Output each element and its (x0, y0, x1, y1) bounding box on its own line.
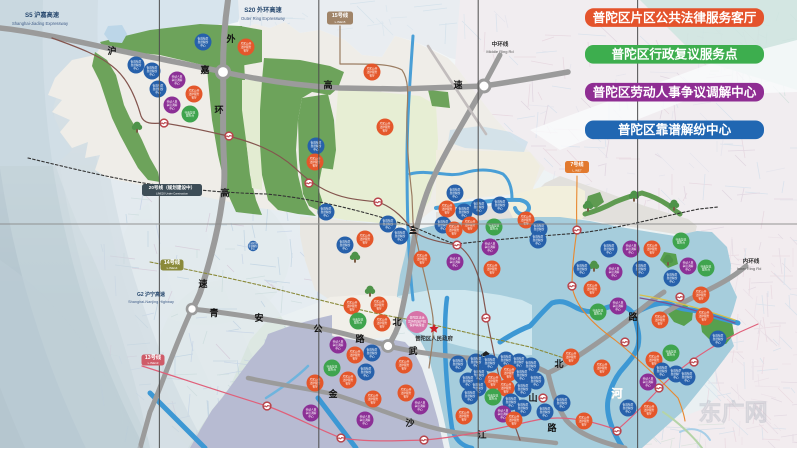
svg-text:S20 外环高速: S20 外环高速 (244, 6, 282, 14)
svg-text:法律服务: 法律服务 (649, 358, 660, 362)
svg-text:法律服务: 法律服务 (350, 353, 361, 357)
svg-text:中心: 中心 (625, 409, 631, 413)
svg-text:中心: 中心 (467, 397, 473, 401)
svg-text:中心: 中心 (308, 414, 314, 418)
svg-text:法律服务: 法律服务 (459, 414, 470, 418)
svg-text:客厅: 客厅 (467, 226, 473, 230)
svg-text:客厅: 客厅 (568, 358, 574, 362)
svg-text:法律服务: 法律服务 (399, 363, 410, 367)
svg-text:靠谱解纷: 靠谱解纷 (459, 210, 470, 214)
svg-text:中心: 中心 (397, 237, 403, 241)
svg-text:靠谱解纷: 靠谱解纷 (604, 247, 615, 251)
svg-text:靠谱解纷: 靠谱解纷 (533, 238, 544, 242)
svg-text:法律服务: 法律服务 (367, 70, 378, 74)
svg-text:靠谱解纷: 靠谱解纷 (340, 243, 351, 247)
svg-text:争议调解: 争议调解 (450, 260, 461, 264)
svg-text:中心: 中心 (535, 241, 541, 245)
svg-text:法律服务: 法律服务 (442, 207, 453, 211)
svg-text:中心: 中心 (363, 373, 369, 377)
svg-text:法律服务: 法律服务 (417, 257, 428, 261)
svg-text:靠谱解纷: 靠谱解纷 (147, 69, 158, 73)
svg-text:靠谱解纷: 靠谱解纷 (518, 406, 529, 410)
svg-text:Outer Ring Expressway: Outer Ring Expressway (241, 16, 286, 21)
svg-text:客厅: 客厅 (444, 210, 450, 214)
svg-text:普陀区靠谱解纷中心: 普陀区靠谱解纷中心 (618, 122, 732, 137)
svg-text:靠谱解纷: 靠谱解纷 (321, 210, 332, 214)
svg-text:中心: 中心 (715, 340, 721, 344)
svg-text:客厅: 客厅 (646, 411, 652, 415)
svg-text:中心: 中心 (497, 206, 503, 210)
svg-text:法律服务: 法律服务 (521, 218, 532, 222)
svg-text:法律服务: 法律服务 (449, 228, 460, 232)
svg-text:中心: 中心 (520, 390, 526, 394)
svg-text:中心: 中心 (508, 403, 514, 407)
svg-text:服务点: 服务点 (667, 353, 675, 357)
svg-text:靠谱解纷: 靠谱解纷 (367, 351, 378, 355)
svg-text:中心: 中心 (149, 72, 155, 76)
svg-text:客厅: 客厅 (379, 324, 385, 328)
svg-text:中心: 中心 (342, 246, 348, 250)
svg-text:中心: 中心 (487, 248, 493, 252)
svg-text:中心: 中心 (335, 346, 341, 350)
svg-text:靠谱解纷: 靠谱解纷 (518, 387, 529, 391)
svg-text:普陀区行政复议服务点: 普陀区行政复议服务点 (612, 47, 738, 62)
svg-text:法律服务: 法律服务 (699, 314, 710, 318)
svg-text:靠谱解纷: 靠谱解纷 (474, 373, 485, 377)
svg-text:S5 沪嘉高速: S5 沪嘉高速 (25, 11, 60, 19)
svg-text:中心: 中心 (417, 407, 423, 411)
svg-text:客厅: 客厅 (490, 382, 496, 386)
svg-text:嘉: 嘉 (199, 64, 209, 75)
svg-text:法律服务: 法律服务 (347, 304, 358, 308)
svg-text:服务点: 服务点 (354, 321, 362, 325)
svg-text:法律服务: 法律服务 (487, 267, 498, 271)
svg-text:靠谱解纷: 靠谱解纷 (713, 337, 724, 341)
svg-text:服务点: 服务点 (702, 268, 710, 272)
svg-text:争议调解: 争议调解 (172, 78, 183, 82)
svg-text:客厅: 客厅 (352, 356, 358, 360)
svg-text:法律服务: 法律服务 (504, 371, 515, 375)
svg-text:靠谱解纷: 靠谱解纷 (395, 234, 406, 238)
svg-text:客厅: 客厅 (698, 296, 704, 300)
svg-text:客厅: 客厅 (370, 400, 376, 404)
svg-text:中心: 中心 (476, 208, 482, 212)
svg-text:客厅: 客厅 (191, 95, 197, 99)
svg-text:L.INE14: L.INE14 (167, 266, 178, 270)
svg-text:客厅: 客厅 (349, 307, 355, 311)
svg-text:争议调解: 争议调解 (333, 343, 344, 347)
svg-text:中心: 中心 (385, 225, 391, 229)
svg-text:靠谱解纷: 靠谱解纷 (485, 361, 496, 365)
svg-text:服务点: 服务点 (489, 397, 497, 401)
svg-text:法律服务: 法律服务 (501, 386, 512, 390)
svg-text:中心: 中心 (606, 250, 612, 254)
svg-text:中心: 中心 (323, 213, 329, 217)
svg-text:沪: 沪 (107, 45, 116, 56)
svg-text:客厅: 客厅 (657, 321, 663, 325)
svg-text:法律服务: 法律服务 (696, 293, 707, 297)
svg-text:环: 环 (214, 105, 223, 115)
svg-text:中心: 中心 (452, 194, 458, 198)
svg-text:客厅: 客厅 (523, 221, 529, 225)
svg-text:15号线: 15号线 (332, 11, 349, 19)
svg-text:客厅: 客厅 (506, 374, 512, 378)
svg-text:靠谱解纷: 靠谱解纷 (526, 364, 537, 368)
svg-text:青: 青 (209, 307, 218, 318)
svg-text:法律服务: 法律服务 (360, 237, 371, 241)
svg-text:北: 北 (554, 358, 563, 369)
svg-text:中心: 中心 (579, 270, 585, 274)
svg-text:速: 速 (198, 278, 207, 289)
svg-text:LINE20 Under Construction: LINE20 Under Construction (156, 191, 188, 195)
svg-text:20号线（规划建设中）: 20号线（规划建设中） (149, 184, 195, 191)
svg-text:安: 安 (254, 312, 263, 323)
svg-text:靠谱解纷: 靠谱解纷 (453, 362, 464, 366)
svg-text:速: 速 (453, 79, 462, 90)
svg-text:中心: 中心 (673, 375, 679, 379)
svg-text:法律服务: 法律服务 (377, 321, 388, 325)
svg-text:靠谱解纷: 靠谱解纷 (450, 191, 461, 195)
svg-text:中心: 中心 (659, 372, 665, 376)
svg-text:中心: 中心 (169, 106, 175, 110)
svg-text:靠谱解纷: 靠谱解纷 (501, 358, 512, 362)
svg-text:客厅: 客厅 (419, 260, 425, 264)
svg-text:L.INE15: L.INE15 (335, 20, 346, 24)
svg-text:L.INE7: L.INE7 (572, 168, 582, 172)
svg-text:普陀区人民政府: 普陀区人民政府 (415, 335, 453, 343)
svg-text:内环线: 内环线 (743, 257, 760, 265)
svg-text:靠谱解纷: 靠谱解纷 (495, 203, 506, 207)
svg-text:客厅: 客厅 (461, 417, 467, 421)
svg-text:中心: 中心 (669, 279, 675, 283)
svg-text:客厅: 客厅 (649, 250, 655, 254)
svg-text:普陀区片区公共法律服务客厅: 普陀区片区公共法律服务客厅 (593, 10, 757, 25)
svg-text:法律服务: 法律服务 (241, 45, 252, 49)
svg-text:河: 河 (612, 386, 623, 400)
svg-text:中心: 中心 (628, 250, 634, 254)
svg-text:路: 路 (547, 422, 557, 433)
svg-text:东广网: 东广网 (699, 399, 768, 425)
svg-text:法律服务: 法律服务 (488, 379, 499, 383)
svg-text:沙: 沙 (405, 418, 414, 428)
svg-text:服务点: 服务点 (186, 114, 194, 118)
svg-text:客厅: 客厅 (382, 128, 388, 132)
svg-text:中心: 中心 (362, 421, 368, 425)
svg-text:中心: 中心 (133, 66, 139, 70)
svg-text:Middle Ring Rd: Middle Ring Rd (486, 49, 513, 54)
svg-text:客厅: 客厅 (589, 290, 595, 294)
svg-text:法律服务: 法律服务 (343, 378, 354, 382)
svg-text:法律服务: 法律服务 (509, 418, 520, 422)
svg-text:法律服务: 法律服务 (655, 318, 666, 322)
svg-text:法律服务: 法律服务 (566, 355, 577, 359)
svg-text:客厅: 客厅 (599, 369, 605, 373)
svg-text:中心: 中心 (461, 213, 467, 217)
svg-text:争议调解: 争议调解 (643, 380, 654, 384)
svg-text:靠谱解纷: 靠谱解纷 (474, 205, 485, 209)
svg-text:争议调解: 争议调解 (683, 264, 694, 268)
svg-text:靠谱解纷: 靠谱解纷 (682, 375, 693, 379)
svg-text:客厅: 客厅 (701, 317, 707, 321)
svg-text:争议调解: 争议调解 (415, 404, 426, 408)
svg-text:争议调解: 争议调解 (609, 270, 620, 274)
svg-text:客厅: 客厅 (511, 421, 517, 425)
svg-text:靠谱解纷: 靠谱解纷 (465, 394, 476, 398)
svg-text:靠谱解纷: 靠谱解纷 (531, 379, 542, 383)
svg-text:中心: 中心 (200, 43, 206, 47)
svg-text:靠谱解纷: 靠谱解纷 (131, 63, 142, 67)
svg-text:靠谱解纷: 靠谱解纷 (506, 400, 517, 404)
svg-text:服务点: 服务点 (594, 312, 602, 316)
svg-text:中心: 中心 (542, 413, 548, 417)
svg-text:靠谱解纷: 靠谱解纷 (517, 373, 528, 377)
svg-text:中心: 中心 (520, 409, 526, 413)
svg-text:中心: 中心 (645, 383, 651, 387)
svg-text:中心: 中心 (500, 415, 506, 419)
svg-text:客厅: 客厅 (312, 384, 318, 388)
svg-text:法律服务: 法律服务 (597, 366, 608, 370)
svg-text:法律服务: 法律服务 (401, 391, 412, 395)
svg-text:中心: 中心 (611, 273, 617, 277)
svg-text:中心: 中心 (487, 364, 493, 368)
svg-text:中心: 中心 (519, 376, 525, 380)
svg-text:服务点: 服务点 (677, 241, 685, 245)
svg-text:法律服务: 法律服务 (579, 419, 590, 423)
svg-text:中心: 中心 (174, 81, 180, 85)
svg-text:客厅: 客厅 (362, 240, 368, 244)
svg-text:中环线: 中环线 (492, 40, 509, 48)
svg-text:Shanghai-Jiading Expressway: Shanghai-Jiading Expressway (12, 21, 69, 26)
svg-text:中心: 中心 (684, 378, 690, 382)
svg-text:客厅: 客厅 (451, 231, 457, 235)
svg-text:中心: 中心 (533, 382, 539, 386)
svg-text:争议调解: 争议调解 (306, 411, 317, 415)
svg-text:金: 金 (327, 388, 338, 399)
svg-text:客厅: 客厅 (376, 306, 382, 310)
svg-text:普陀区劳动人事争议调解中心: 普陀区劳动人事争议调解中心 (593, 85, 757, 100)
svg-text:中心: 中心 (452, 263, 458, 267)
svg-text:靠谱解纷: 靠谱解纷 (667, 276, 678, 280)
svg-text:中心: 中心 (559, 404, 565, 408)
svg-text:法律服务: 法律服务 (374, 303, 385, 307)
svg-text:靠谱解纷: 靠谱解纷 (361, 370, 372, 374)
svg-text:客厅: 客厅 (369, 73, 375, 77)
svg-text:靠谱解纷: 靠谱解纷 (534, 227, 545, 231)
svg-text:争议调解: 争议调解 (167, 103, 178, 107)
svg-text:靠谱解纷: 靠谱解纷 (311, 144, 322, 148)
svg-text:7号线: 7号线 (570, 160, 584, 168)
svg-text:法律服务: 法律服务 (368, 397, 379, 401)
svg-text:客厅: 客厅 (403, 394, 409, 398)
svg-text:中心: 中心 (369, 354, 375, 358)
svg-text:G2 沪宁高速: G2 沪宁高速 (137, 291, 165, 298)
svg-text:客厅: 客厅 (581, 422, 587, 426)
svg-text:Shanghai-Nanjing Highway: Shanghai-Nanjing Highway (128, 300, 174, 304)
svg-text:争议调解: 争议调解 (485, 245, 496, 249)
svg-text:争议调解: 争议调解 (360, 418, 371, 422)
svg-text:客厅: 客厅 (243, 48, 249, 52)
svg-text:外: 外 (225, 33, 235, 44)
svg-text:客厅: 客厅 (651, 361, 657, 365)
svg-text:靠谱解纷: 靠谱解纷 (657, 369, 668, 373)
svg-text:客厅: 客厅 (401, 366, 407, 370)
svg-text:法律服务: 法律服务 (647, 247, 658, 251)
svg-text:客厅: 客厅 (489, 270, 495, 274)
svg-text:Inner Ring Rd: Inner Ring Rd (737, 266, 762, 271)
svg-text:靠谱解纷: 靠谱解纷 (577, 267, 588, 271)
svg-text:争议调解: 争议调解 (613, 304, 624, 308)
svg-text:靠谱解纷: 靠谱解纷 (471, 360, 482, 364)
svg-text:靠谱解纷: 靠谱解纷 (540, 410, 551, 414)
svg-text:靠谱解纷: 靠谱解纷 (623, 406, 634, 410)
svg-text:法律服务: 法律服务 (644, 408, 655, 412)
svg-text:中心: 中心 (313, 147, 319, 151)
svg-text:中心: 中心 (615, 307, 621, 311)
svg-text:靠谱解纷: 靠谱解纷 (557, 401, 568, 405)
svg-text:服务点: 服务点 (490, 227, 498, 231)
svg-text:争议调解: 争议调解 (626, 247, 637, 251)
svg-text:保护联席会: 保护联席会 (409, 322, 424, 327)
svg-text:中心: 中心 (685, 267, 691, 271)
svg-text:中心: 中心 (638, 270, 644, 274)
svg-text:中心: 中心 (155, 90, 161, 94)
svg-text:中心: 中心 (455, 365, 461, 369)
svg-text:客厅: 客厅 (345, 381, 351, 385)
svg-text:靠谱解纷: 靠谱解纷 (198, 40, 209, 44)
svg-text:公: 公 (313, 324, 322, 334)
svg-text:靠谱解纷: 靠谱解纷 (153, 87, 164, 91)
svg-text:服务点: 服务点 (328, 368, 336, 372)
svg-text:法律服务: 法律服务 (189, 92, 200, 96)
svg-text:中心: 中心 (440, 226, 446, 230)
svg-text:武: 武 (408, 345, 417, 356)
svg-text:L.INE13: L.INE13 (148, 361, 159, 365)
svg-text:客厅: 客厅 (503, 389, 509, 393)
svg-text:法律服务: 法律服务 (587, 287, 598, 291)
svg-text:高: 高 (323, 79, 332, 90)
svg-text:客厅: 客厅 (312, 163, 318, 167)
svg-text:路: 路 (628, 311, 638, 322)
svg-text:路: 路 (355, 333, 365, 344)
svg-text:法律服务: 法律服务 (380, 125, 391, 129)
